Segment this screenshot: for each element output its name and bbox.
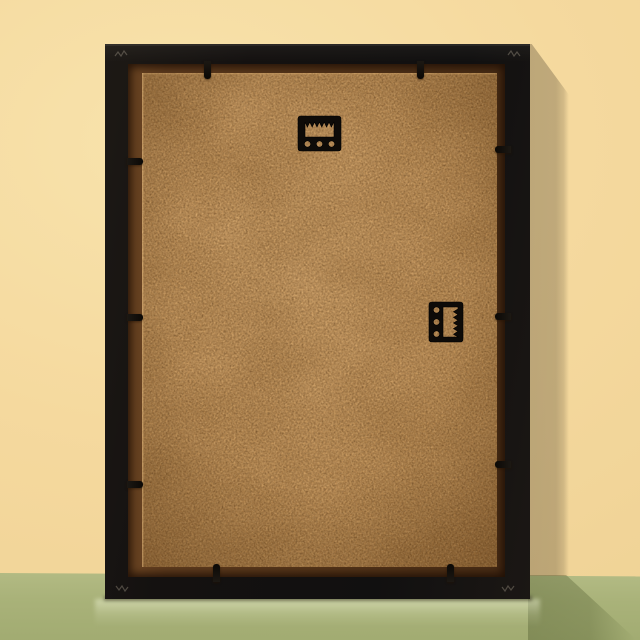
retainer-clip-right-3 <box>495 461 511 468</box>
retainer-clip-left-1 <box>127 158 143 165</box>
retainer-clip-top-1 <box>204 61 211 79</box>
frame-shadow-on-wall <box>528 44 569 580</box>
floor-reflection <box>95 599 540 627</box>
sawtooth-hanger-side <box>428 301 464 343</box>
corner-joint-mark <box>114 49 128 59</box>
retainer-clip-bottom-1 <box>213 564 220 582</box>
retainer-clip-right-1 <box>495 146 511 153</box>
corner-joint-mark <box>507 49 521 59</box>
retainer-clip-left-2 <box>127 314 143 321</box>
corner-joint-mark <box>501 583 515 593</box>
corner-joint-mark <box>115 583 129 593</box>
retainer-clip-bottom-2 <box>447 564 454 582</box>
retainer-clip-top-2 <box>417 61 424 79</box>
picture-frame-back <box>105 44 530 599</box>
scene <box>0 0 640 640</box>
sawtooth-hanger-top <box>297 115 342 152</box>
retainer-clip-left-3 <box>127 481 143 488</box>
retainer-clip-right-2 <box>495 313 511 320</box>
